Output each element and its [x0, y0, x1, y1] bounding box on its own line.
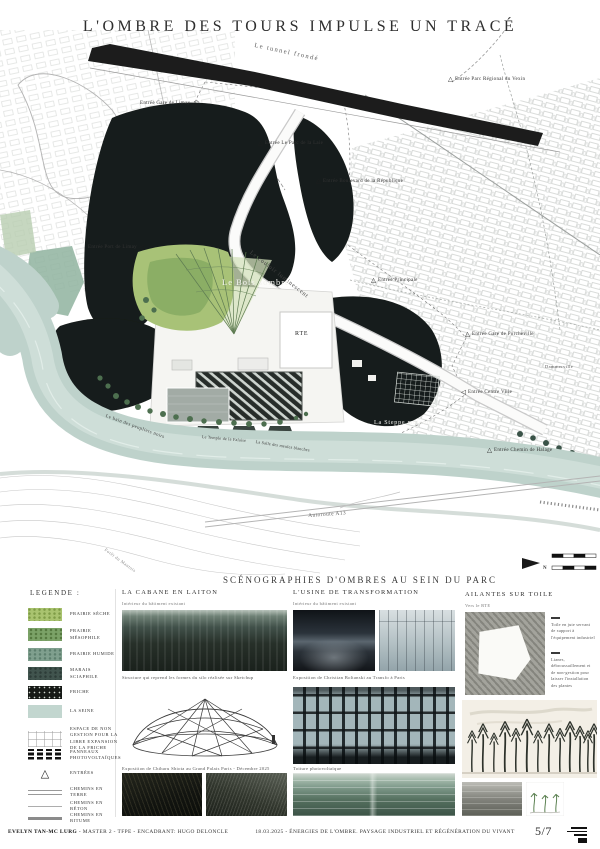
map-entrance-centre-ville: Entrée Centre Ville — [461, 389, 512, 396]
legend-item: ENTRÉES — [28, 767, 118, 780]
caption: Structure qui reprend les formes du silo… — [122, 675, 254, 680]
legend-item: PANNEAUX PHOTOVOLTAÏQUES — [28, 749, 118, 762]
column2-heading: L'USINE DE TRANSFORMATION — [293, 589, 419, 596]
swatch-marais — [28, 667, 62, 680]
legend-item: PRAIRIE HUMIDE — [28, 648, 118, 661]
map-label: Entrée Gare de Porcheville — [472, 332, 534, 337]
legend-title: LEGENDE : — [30, 589, 80, 597]
map-label: Entrée Gare de Limay — [140, 101, 190, 106]
legend-item: MARAIS SCIAPHILE — [28, 667, 118, 680]
site-plan-art — [0, 30, 600, 575]
entrance-triangle-icon — [258, 140, 263, 147]
ensap-logo — [567, 825, 587, 843]
plant-sketch — [526, 782, 564, 816]
map-label: Entrée Chemin de Halage — [494, 448, 552, 453]
caption: Toiture photovoltaïque — [293, 766, 342, 771]
map-entrance-principale: Entrée Principale — [371, 277, 418, 284]
map-entrance-porcheville: Entrée Gare de Porcheville — [465, 331, 534, 338]
site-plan-map: Le tunnel frondé Entrée Parc Régional du… — [0, 30, 600, 575]
column2-subtitle: Intérieur du bâtiment existant — [293, 601, 356, 606]
entrance-triangle-icon — [487, 447, 492, 454]
column3-heading: AILANTES SUR TOILE — [465, 591, 554, 598]
legend-label: ESPACE DE NON GESTION POUR LA LIBRE EXPA… — [70, 726, 118, 752]
legend-label: ENTRÉES — [70, 770, 118, 776]
note: Lianes, débroussaillement et de non-gest… — [551, 657, 595, 689]
legend-label: CHEMINS EN TERRE — [70, 786, 118, 799]
legend-label: LA SEINE — [70, 708, 118, 714]
map-entrance-republique: Entrée Boulevard de la République — [316, 178, 403, 185]
path-terre-icon — [28, 790, 62, 795]
legend-item: FRICHE — [28, 686, 118, 699]
map-label: Entrée Centre Ville — [468, 390, 512, 395]
column3-subtitle: Vers le RTE — [465, 603, 490, 608]
footer: EVELYN TAN-MC LURG - MASTER 2 - TFPE - E… — [0, 822, 600, 849]
entrance-triangle-icon — [461, 389, 466, 396]
map-entrance-gare-limay: Entrée Gare de Limay — [140, 100, 197, 107]
photovoltaic-icon — [28, 749, 62, 761]
photo-boltanski-windows — [293, 687, 455, 764]
map-entrance-port-limay: Entrée Port de Limay — [88, 244, 144, 251]
legend-label: PANNEAUX PHOTOVOLTAÏQUES — [70, 749, 118, 762]
swatch-prairie-seche — [28, 608, 62, 621]
dome-structure-sketch — [122, 687, 287, 764]
footer-project-line: 18.03.2025 - ÉNERGIES DE L'OMBRE. PAYSAG… — [240, 829, 530, 835]
legend-item: CHEMINS EN TERRE — [28, 786, 118, 799]
entrance-triangle-icon — [448, 76, 453, 83]
non-gestion-grid-icon — [28, 731, 62, 747]
caption: Exposition de Christian Boltanski au Tra… — [293, 675, 405, 680]
entrance-triangle-icon — [192, 100, 197, 107]
photo-shiota-2 — [206, 773, 287, 816]
footer-meta: - MASTER 2 - TFPE - ENCADRANT: HUGO DELO… — [77, 829, 228, 835]
legend-item: CHEMINS EN BÉTON — [28, 800, 118, 813]
town-fabric-right — [345, 78, 600, 492]
legend-label: PRAIRIE MÉSOPHILE — [70, 628, 118, 641]
map-label-bois-sombre: Le Bois sombre — [222, 278, 290, 287]
contour-lines — [0, 475, 360, 574]
map-label: Entrée Port de Limay — [88, 245, 137, 250]
photo-solar-roof — [293, 773, 455, 816]
map-entrance-parc-laie: Entrée Le Parc de la Laie — [258, 140, 323, 147]
photo-shiota-1 — [122, 773, 202, 816]
legend-label: CHEMINS EN BÉTON — [70, 800, 118, 813]
caption: Exposition de Chiharu Shiota au Grand Pa… — [122, 766, 270, 771]
entrance-triangle-icon — [28, 767, 62, 780]
swatch-seine — [28, 705, 62, 718]
photo-rte-collage — [465, 612, 545, 695]
north-arrow-icon — [522, 558, 540, 569]
column1-subtitle: Intérieur du bâtiment existant — [122, 601, 185, 606]
entrance-triangle-icon — [139, 244, 144, 251]
entrance-triangle-icon — [371, 277, 376, 284]
column1-heading: LA CABANE EN LAITON — [122, 589, 218, 596]
ailantes-tree-sketch — [462, 700, 597, 778]
entrance-triangle-icon — [316, 178, 321, 185]
map-label-rte: RTE — [295, 331, 308, 337]
note: Toile en jute servant de support à l'équ… — [551, 622, 595, 641]
map-label-dammerville: Dammerville — [545, 365, 573, 370]
map-label: Entrée Boulevard de la République — [323, 179, 403, 184]
steppe-grid — [394, 372, 439, 406]
poster: L'OMBRE DES TOURS IMPULSE UN TRACÉ — [0, 0, 600, 849]
north-label: N — [543, 566, 547, 571]
prairie-mesophile-area — [147, 258, 213, 316]
legend-item: ESPACE DE NON GESTION POUR LA LIBRE EXPA… — [28, 726, 118, 752]
legend-item: LA SEINE — [28, 705, 118, 718]
map-label-steppe: La Steppe mutante — [374, 420, 433, 426]
swatch-friche — [28, 686, 62, 699]
legend-label: PRAIRIE SÈCHE — [70, 611, 118, 617]
legend-label: MARAIS SCIAPHILE — [70, 667, 118, 680]
swatch-prairie-humide — [28, 648, 62, 661]
photo-cabane-interior — [122, 610, 287, 671]
photo-riverbank — [462, 782, 522, 816]
legend-label: PRAIRIE HUMIDE — [70, 651, 118, 657]
section-title: SCÉNOGRAPHIES D'OMBRES AU SEIN DU PARC — [120, 575, 600, 585]
column-divider — [115, 589, 116, 817]
note-marker-icon — [551, 617, 560, 619]
swatch-prairie-mesophile — [28, 628, 62, 641]
map-label: Entrée Parc Régional du Vexin — [455, 77, 525, 82]
footer-author-line: EVELYN TAN-MC LURG - MASTER 2 - TFPE - E… — [8, 829, 228, 835]
photo-usine-interior — [293, 610, 375, 671]
scale-bar — [552, 554, 596, 570]
path-beton-icon — [28, 806, 62, 807]
page-number: 5/7 — [535, 824, 552, 839]
note-marker-icon — [551, 652, 560, 654]
rte-building — [280, 312, 332, 368]
map-entrance-vexin: Entrée Parc Régional du Vexin — [448, 76, 525, 83]
map-label: Entrée Le Parc de la Laie — [265, 141, 323, 146]
photo-usine-sketch — [379, 610, 455, 671]
entrance-triangle-icon — [465, 331, 470, 338]
path-bitume-icon — [28, 817, 62, 820]
legend-label: FRICHE — [70, 689, 118, 695]
legend-item: PRAIRIE MÉSOPHILE — [28, 628, 118, 641]
footer-author: EVELYN TAN-MC LURG — [8, 829, 77, 835]
map-label: Entrée Principale — [378, 278, 418, 283]
map-entrance-halage: Entrée Chemin de Halage — [487, 447, 552, 454]
legend-item: PRAIRIE SÈCHE — [28, 608, 118, 621]
